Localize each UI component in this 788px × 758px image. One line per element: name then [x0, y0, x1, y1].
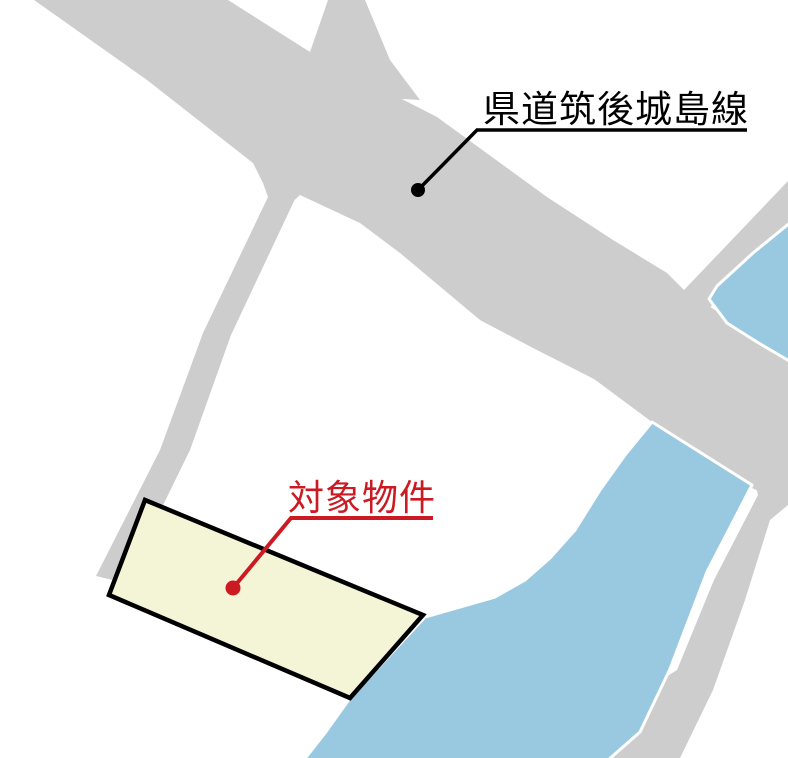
road-label-anchor-dot [411, 183, 425, 197]
parcel-label-anchor-dot [226, 581, 241, 596]
subject-property-label: 対象物件 [288, 477, 436, 518]
property-location-map: 県道筑後城島線 対象物件 [0, 0, 788, 758]
road-name-label: 県道筑後城島線 [483, 89, 749, 130]
map-drawing: 県道筑後城島線 対象物件 [0, 0, 788, 758]
